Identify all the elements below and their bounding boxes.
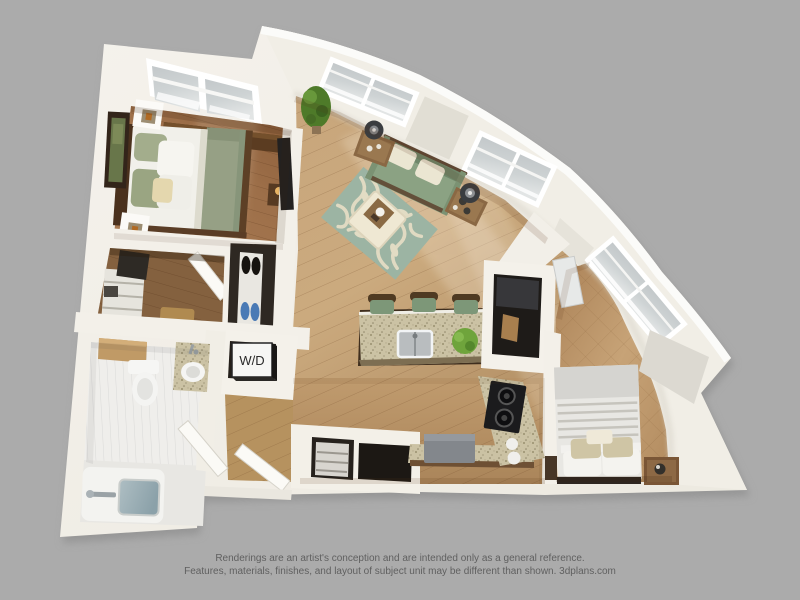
- svg-text:W/D: W/D: [239, 353, 264, 368]
- svg-text:Features, materials, finishes,: Features, materials, finishes, and layou…: [184, 566, 616, 577]
- svg-text:Renderings are an artist's con: Renderings are an artist's conception an…: [215, 553, 584, 564]
